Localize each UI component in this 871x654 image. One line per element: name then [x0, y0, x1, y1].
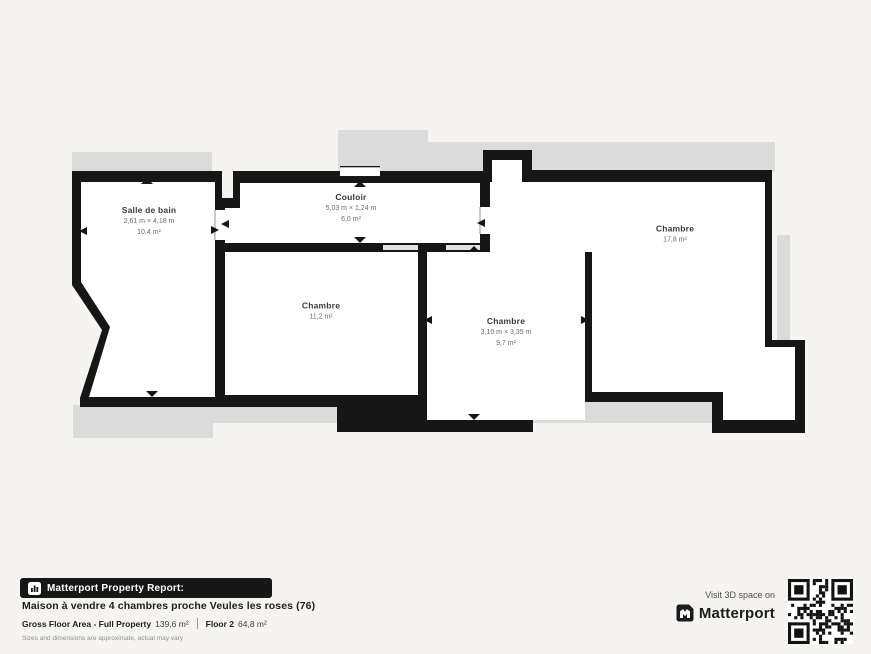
room-chambre-centre — [427, 252, 585, 420]
promo-block: Visit 3D space on Matterport — [676, 590, 775, 622]
room-couloir — [225, 183, 480, 243]
stats-divider — [197, 618, 198, 629]
report-banner: Matterport Property Report: — [20, 578, 272, 598]
report-banner-label: Matterport Property Report: — [47, 583, 184, 594]
window-frame-line — [340, 166, 380, 167]
window-couloir — [340, 166, 380, 176]
floor-area-stats: Gross Floor Area - Full Property 139,6 m… — [22, 618, 267, 629]
visit-3d-text: Visit 3D space on — [705, 590, 775, 600]
matterport-floorplan-page: Salle de bain2,61 m × 4,18 m10,4 m²Coulo… — [0, 0, 871, 654]
qr-code — [788, 579, 853, 644]
matterport-m-icon — [676, 604, 694, 622]
floor-value: 64,8 m² — [238, 619, 267, 629]
door-leaf-chambre-est — [479, 207, 481, 234]
gross-area-label: Gross Floor Area - Full Property — [22, 619, 151, 629]
brand-name: Matterport — [699, 605, 775, 622]
building-chart-icon — [28, 582, 41, 595]
gross-area-value: 139,6 m² — [155, 619, 189, 629]
room-salle-de-bain — [81, 182, 215, 397]
brand-row: Matterport — [676, 604, 775, 622]
room-chambre-ouest — [225, 252, 418, 395]
floor-label: Floor 2 — [206, 619, 234, 629]
disclaimer-text: Sizes and dimensions are approximate, ac… — [22, 635, 183, 642]
opening-chambre-ouest — [383, 245, 418, 250]
property-title: Maison à vendre 4 chambres proche Veules… — [22, 600, 315, 612]
floor-plan — [0, 0, 871, 654]
door-leaf-salle-de-bain — [214, 210, 216, 240]
